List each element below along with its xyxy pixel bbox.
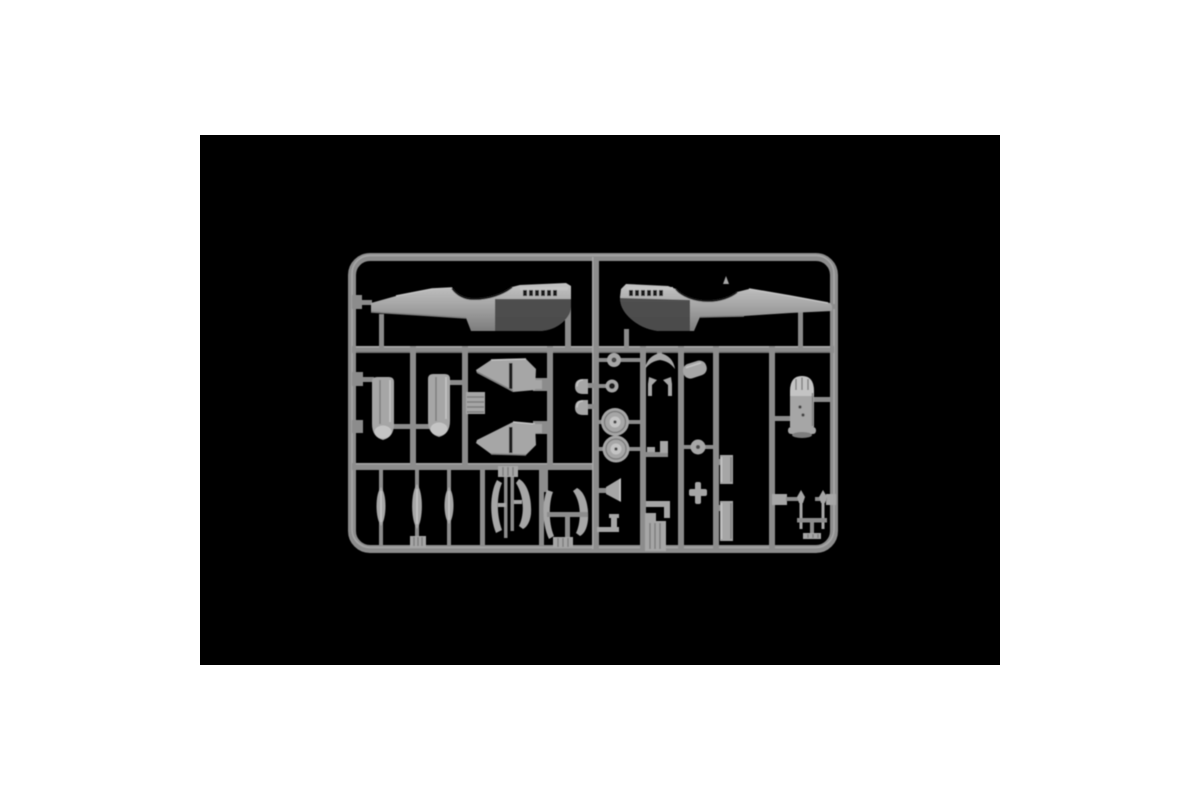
part-wing-half-upper	[476, 359, 542, 392]
part-engine-cowling-half-2	[428, 374, 450, 437]
part-intake-fairing	[681, 359, 708, 381]
part-rod-bracket	[647, 441, 668, 453]
part-ribbed-foot	[410, 536, 426, 547]
part-gear-door-set-2	[543, 468, 588, 548]
part-tail-gear-assembly	[772, 490, 836, 539]
part-engine-cowling-half-1	[372, 377, 394, 440]
part-gear-strut-small-2	[663, 377, 672, 396]
part-drop-tank-half-2	[412, 484, 422, 529]
part-gear-door-set-1	[491, 466, 531, 538]
part-small-disc	[691, 440, 706, 455]
part-dome-cap-2	[575, 400, 588, 415]
part-wing-half-lower	[476, 422, 542, 455]
part-elbow-fitting	[597, 514, 619, 532]
photo-canvas	[0, 0, 1200, 800]
part-ribbed-panel	[466, 392, 485, 414]
part-gear-strut-small-1	[648, 377, 657, 396]
part-small-wheel	[607, 353, 621, 367]
antenna-fin	[723, 276, 729, 284]
part-drop-tank-half-3	[445, 487, 454, 524]
part-wheel-ring	[606, 380, 619, 393]
part-drop-tank-half-1	[377, 487, 386, 526]
part-engine-block	[788, 376, 816, 438]
part-main-wheel-2	[603, 436, 630, 463]
part-main-wheel-1	[601, 408, 629, 436]
sprue-photo	[0, 0, 1200, 800]
part-radiator-plate-2	[720, 501, 733, 541]
part-headrest-crescent	[645, 353, 675, 369]
part-cross-fitting	[689, 482, 707, 504]
part-louvered-block	[645, 513, 666, 551]
part-fuselage-half-left	[371, 283, 571, 331]
part-funnel	[606, 478, 621, 502]
part-radiator-plate-1	[720, 455, 733, 484]
part-dome-cap-1	[575, 379, 588, 394]
